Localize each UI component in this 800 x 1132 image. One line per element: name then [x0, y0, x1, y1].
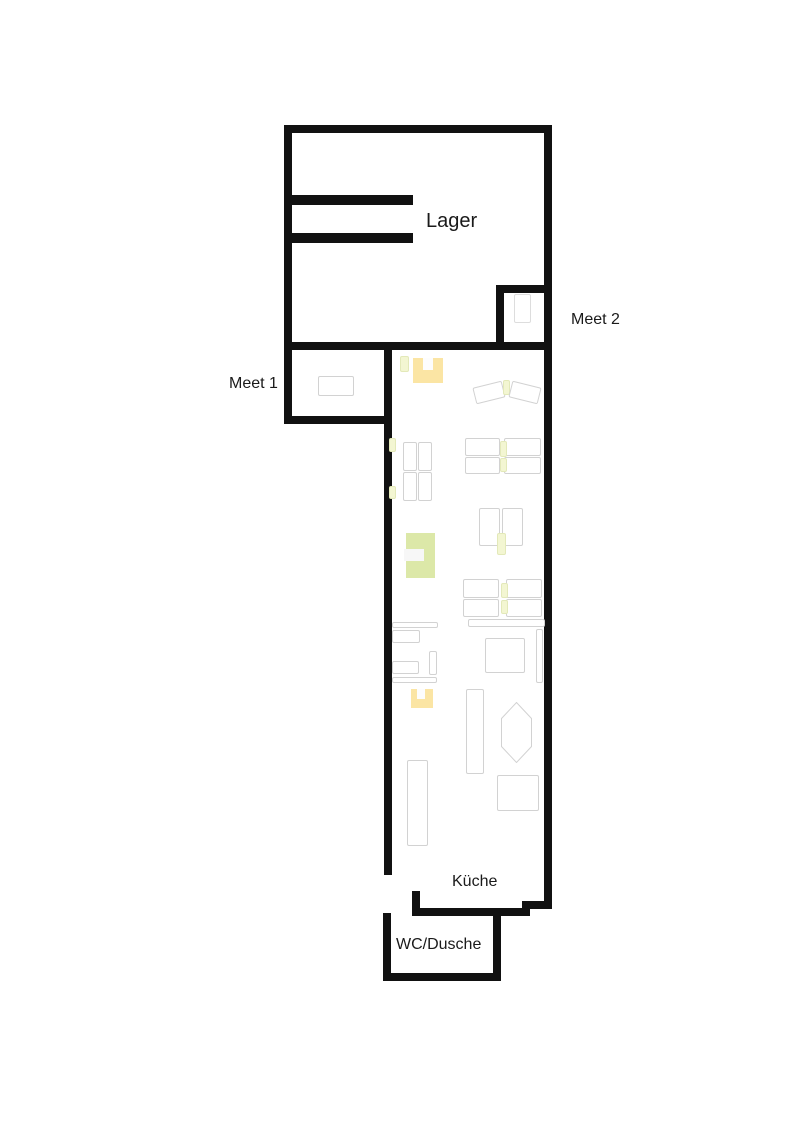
wall-lager-top	[284, 125, 552, 133]
room-label-lager: Lager	[426, 210, 477, 233]
desk	[463, 599, 499, 617]
storage-shelf-2	[292, 233, 413, 243]
wall-lager-bottom	[284, 342, 552, 350]
storage-shelf-1	[292, 195, 413, 205]
desk	[506, 599, 542, 617]
armchair-yellow-1	[413, 358, 443, 383]
desk	[418, 472, 432, 501]
wall-wc-bottom	[383, 973, 501, 981]
desk	[504, 457, 541, 474]
desk	[418, 442, 432, 471]
table-long	[466, 689, 484, 774]
room-label-meet2: Meet 2	[571, 311, 620, 329]
table-hexagon	[501, 702, 532, 763]
armchair-notch	[423, 358, 433, 370]
floor-plan: Lager Meet 2 Meet 1 Küche WC/Dusche	[0, 0, 800, 1132]
kitchen-counter	[407, 760, 428, 846]
plant-8	[501, 583, 508, 598]
sideboard	[392, 661, 419, 674]
desk	[504, 438, 541, 456]
desk	[463, 579, 499, 598]
room-label-kueche: Küche	[452, 873, 497, 891]
counter	[536, 629, 543, 683]
meet1-table	[318, 376, 354, 396]
plant-5	[500, 441, 507, 457]
desk	[403, 472, 417, 501]
counter	[468, 619, 545, 627]
sideboard-shelf	[392, 622, 438, 628]
room-label-meet1: Meet 1	[229, 375, 278, 393]
wall-meet1-bottom	[284, 416, 392, 424]
sofa-green	[406, 533, 435, 578]
sideboard	[392, 630, 420, 643]
wall-hall-left	[384, 342, 392, 875]
desk-angled-left	[472, 381, 505, 405]
table-square	[485, 638, 525, 673]
plant-7	[497, 533, 506, 555]
armchair-yellow-2	[411, 689, 433, 708]
wall-wc-right	[493, 915, 501, 981]
wall-lager-left	[284, 125, 292, 350]
sideboard-shelf	[392, 677, 437, 683]
wall-right-outer	[544, 125, 552, 909]
plant-3	[389, 438, 396, 452]
sofa-notch	[404, 549, 424, 561]
wall-wc-left	[383, 913, 391, 981]
wall-meet2-left	[496, 285, 504, 350]
room-label-wc: WC/Dusche	[396, 936, 481, 954]
desk	[465, 438, 500, 456]
armchair-notch	[417, 689, 425, 699]
plant-4	[389, 486, 396, 499]
wall-meet1-left	[284, 342, 292, 424]
kitchen-table	[497, 775, 539, 811]
meet2-table	[514, 294, 531, 323]
desk	[403, 442, 417, 471]
wall-meet2-top	[496, 285, 552, 293]
plant-9	[501, 600, 508, 614]
wall-kueche-bottom	[412, 908, 530, 916]
sideboard	[429, 651, 437, 675]
plant-6	[500, 458, 507, 472]
desk	[506, 579, 542, 598]
desk-angled-right	[508, 381, 541, 405]
wall-step-horizontal	[522, 901, 552, 909]
plant-1	[400, 356, 409, 372]
desk	[465, 457, 500, 474]
